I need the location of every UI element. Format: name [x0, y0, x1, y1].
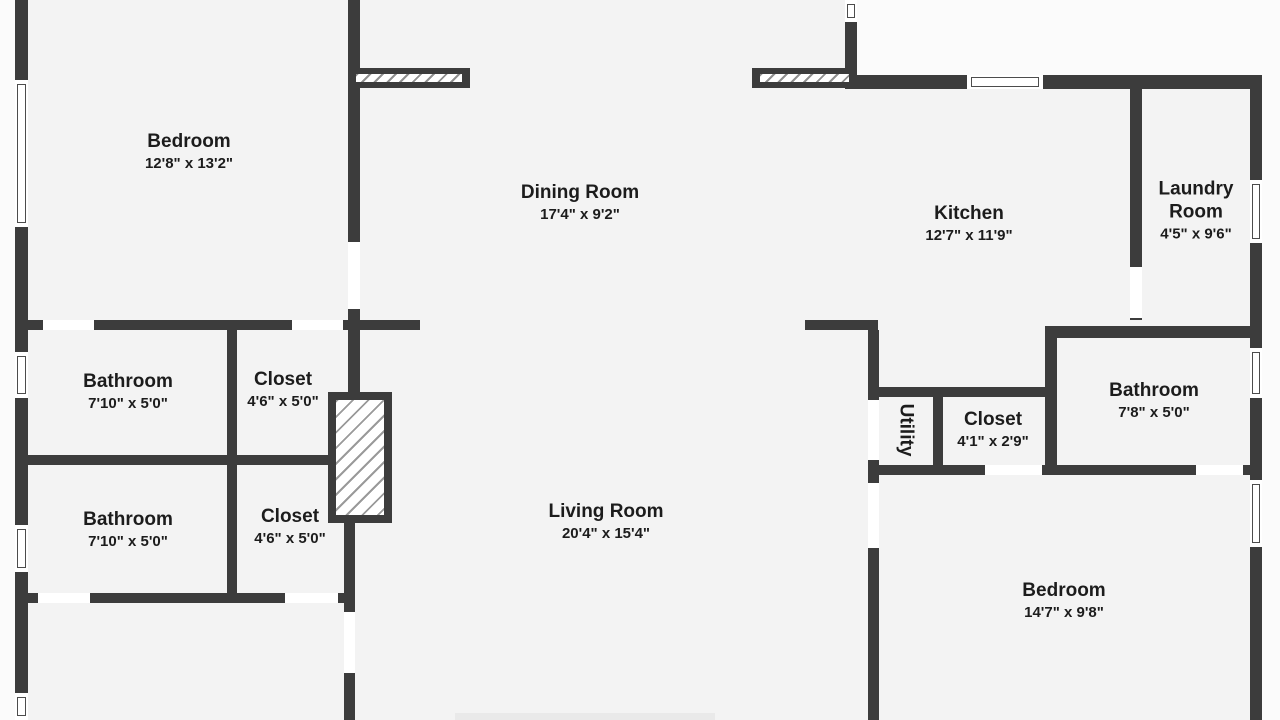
window-pane: [17, 356, 26, 394]
room-dimensions: 7'10" x 5'0": [83, 393, 173, 414]
door-opening: [348, 242, 360, 309]
door-opening: [985, 465, 1042, 475]
room-name: Closet: [247, 368, 318, 391]
room-name: Bathroom: [1109, 379, 1199, 402]
wall: [868, 387, 1057, 397]
window-pane: [1252, 484, 1260, 543]
room-name: Kitchen: [925, 202, 1012, 225]
window: [15, 525, 28, 572]
room-dimensions: 4'6" x 5'0": [247, 391, 318, 412]
room-name: Bedroom: [145, 130, 233, 153]
door-opening: [868, 400, 879, 460]
wall: [1045, 326, 1262, 338]
room-label-closet-5: Closet4'6" x 5'0": [247, 368, 318, 412]
room-dimensions: 12'8" x 13'2": [145, 153, 233, 174]
room-name: Laundry Room: [1140, 178, 1252, 224]
room-name: Living Room: [548, 500, 663, 523]
window: [845, 0, 857, 22]
window: [15, 352, 28, 398]
room-dimensions: 17'4" x 9'2": [521, 204, 639, 225]
sliding-door-hatch: [356, 74, 462, 82]
floor-area: [15, 0, 360, 720]
room-dimensions: 4'1" x 2'9": [957, 431, 1028, 452]
door-opening: [344, 612, 355, 673]
fireplace-hatch-pattern: [336, 400, 384, 515]
wall: [15, 455, 328, 465]
room-label-bedroom-12: Bedroom14'7" x 9'8": [1022, 579, 1105, 623]
floor-area: [348, 0, 857, 720]
room-dimensions: 20'4" x 15'4": [548, 523, 663, 544]
wall: [348, 330, 360, 392]
room-dimensions: 7'8" x 5'0": [1109, 402, 1199, 423]
window-pane: [17, 529, 26, 568]
window-pane: [1252, 352, 1260, 394]
room-label-utility-9: Utility: [895, 404, 918, 457]
room-name: Closet: [254, 505, 325, 528]
window: [1250, 480, 1262, 547]
room-label-bedroom-0: Bedroom12'8" x 13'2": [145, 130, 233, 174]
room-label-bathroom-4: Bathroom7'10" x 5'0": [83, 370, 173, 414]
room-dimensions: 4'6" x 5'0": [254, 528, 325, 549]
window-pane: [1252, 184, 1260, 239]
door-opening: [292, 320, 343, 330]
window: [967, 75, 1043, 89]
room-name: Bathroom: [83, 370, 173, 393]
floor-plan: Bedroom12'8" x 13'2"Dining Room17'4" x 9…: [0, 0, 1280, 720]
room-label-laundry-room-3: Laundry Room4'5" x 9'6": [1140, 178, 1252, 245]
wall: [933, 397, 943, 475]
wall: [805, 320, 878, 330]
door-opening: [1130, 267, 1142, 318]
window-pane: [971, 77, 1039, 87]
room-label-bathroom-6: Bathroom7'10" x 5'0": [83, 508, 173, 552]
door-opening: [285, 593, 338, 603]
room-label-closet-10: Closet4'1" x 2'9": [957, 408, 1028, 452]
room-name: Closet: [957, 408, 1028, 431]
window: [1250, 348, 1262, 398]
room-label-bathroom-11: Bathroom7'8" x 5'0": [1109, 379, 1199, 423]
room-label-dining-room-1: Dining Room17'4" x 9'2": [521, 181, 639, 225]
room-label-closet-7: Closet4'6" x 5'0": [254, 505, 325, 549]
room-name: Utility: [895, 404, 918, 457]
room-dimensions: 12'7" x 11'9": [925, 225, 1012, 246]
wall: [1045, 338, 1057, 475]
sliding-door: [348, 68, 470, 88]
room-name: Bathroom: [83, 508, 173, 531]
window-pane: [17, 697, 26, 716]
window-pane: [847, 4, 855, 18]
window: [15, 80, 28, 227]
floor-shading: [455, 713, 715, 720]
room-dimensions: 14'7" x 9'8": [1022, 602, 1105, 623]
wall: [845, 75, 1262, 89]
room-dimensions: 7'10" x 5'0": [83, 531, 173, 552]
wall: [227, 330, 237, 455]
door-opening: [38, 593, 90, 603]
room-name: Dining Room: [521, 181, 639, 204]
wall: [227, 465, 237, 593]
room-dimensions: 4'5" x 9'6": [1140, 224, 1252, 245]
window-pane: [17, 84, 26, 223]
door-opening: [43, 320, 94, 330]
sliding-door: [752, 68, 857, 88]
door-opening: [1196, 465, 1243, 475]
room-label-living-room-8: Living Room20'4" x 15'4": [548, 500, 663, 544]
door-opening: [868, 483, 879, 548]
sliding-door-hatch: [760, 74, 849, 82]
room-label-kitchen-2: Kitchen12'7" x 11'9": [925, 202, 1012, 246]
room-name: Bedroom: [1022, 579, 1105, 602]
fireplace-hatched-box: [328, 392, 392, 523]
window: [15, 693, 28, 720]
